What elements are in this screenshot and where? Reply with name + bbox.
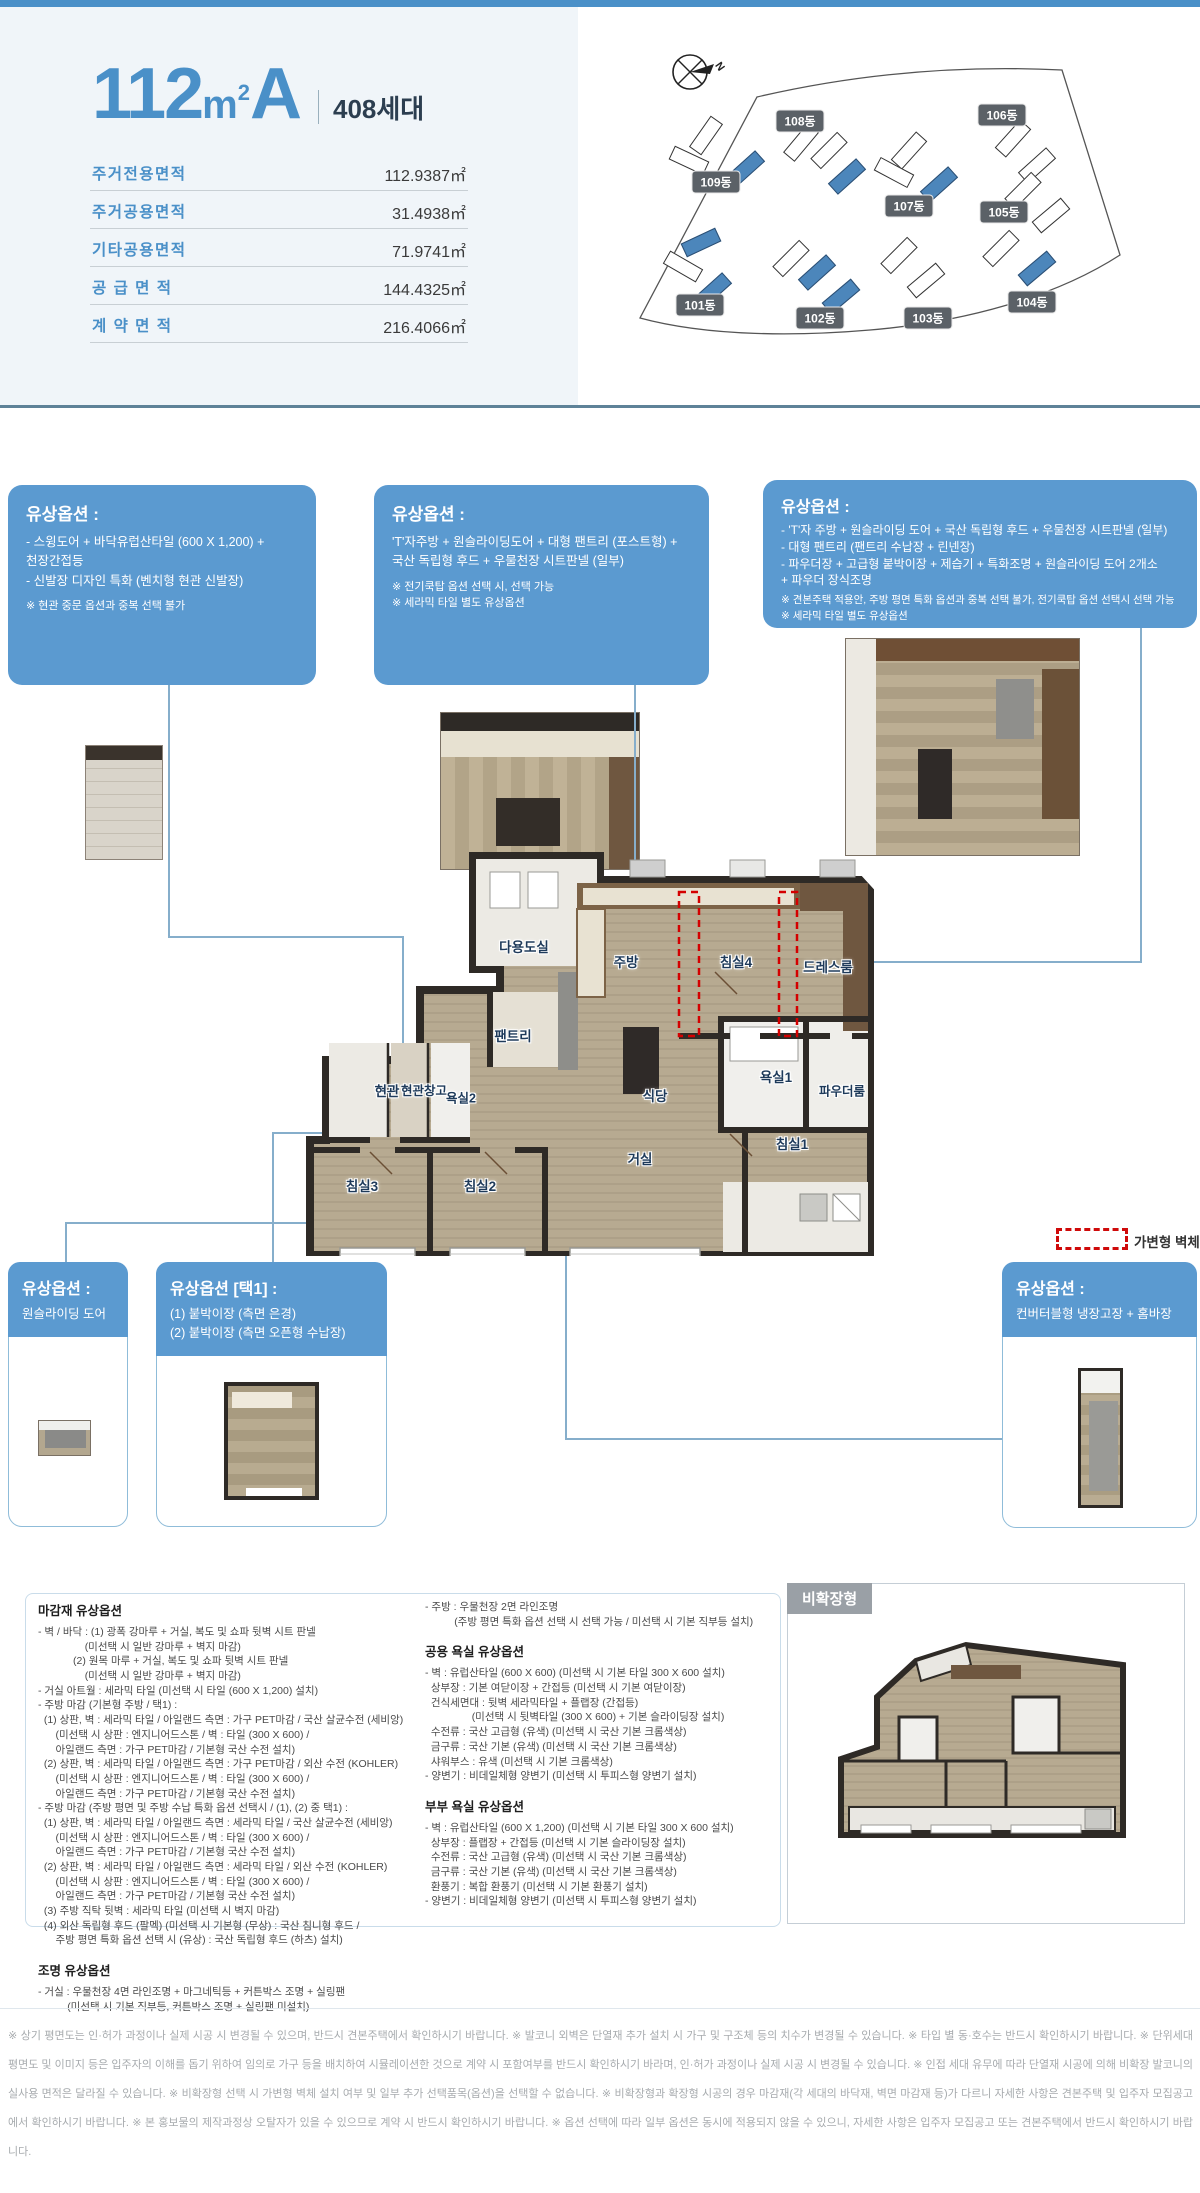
option-box-title: 유상옵션 : bbox=[392, 500, 691, 525]
common-bath-body: - 벽 : 유럽산타일 (600 X 600) (미선택 시 기본 타일 300… bbox=[425, 1666, 770, 1784]
card-body: (1) 붙박이장 (측면 은경) (2) 붙박이장 (측면 오픈형 수납장) bbox=[170, 1305, 373, 1343]
card-body: 원슬라이딩 도어 bbox=[22, 1305, 114, 1324]
table-row: 주거전용면적112.9387㎡ bbox=[90, 152, 468, 191]
room-label-bed4: 침실4 bbox=[720, 951, 752, 971]
kitchen-dress-option-preview-image bbox=[845, 638, 1080, 856]
card-title: 유상옵션 : bbox=[22, 1275, 114, 1299]
area-label: 주거공용면적 bbox=[92, 200, 187, 222]
building-label-102: 102동 bbox=[796, 308, 843, 329]
room-label-powder: 파우더룸 bbox=[819, 1081, 865, 1100]
master-bath-title: 부부 욕실 유상옵션 bbox=[425, 1796, 770, 1815]
building-label-107: 107동 bbox=[885, 196, 932, 217]
paid-option-box-kitchen-dress: 유상옵션 : - 'T'자 주방 + 원슬라이딩 도어 + 국산 독립형 후드 … bbox=[763, 480, 1197, 628]
paid-option-box-entry: 유상옵션 : - 스윙도어 + 바닥유럽산타일 (600 X 1,200) + … bbox=[8, 485, 316, 685]
area-label: 주거전용면적 bbox=[92, 162, 187, 184]
building-label-105: 105동 bbox=[980, 202, 1027, 223]
table-row: 계 약 면 적216.4066㎡ bbox=[90, 304, 468, 343]
area-value: 216.4066㎡ bbox=[383, 314, 466, 338]
common-bath-title: 공용 욕실 유상옵션 bbox=[425, 1641, 770, 1660]
title-separator bbox=[318, 90, 319, 124]
option-box-title: 유상옵션 : bbox=[781, 493, 1179, 517]
brochure-page: 112m2A408세대 주거전용면적112.9387㎡ 주거공용면적31.493… bbox=[0, 0, 1200, 2193]
building-label-101: 101동 bbox=[676, 295, 723, 316]
sliding-door-preview-image bbox=[38, 1420, 91, 1456]
paid-option-card-sliding-door: 유상옵션 : 원슬라이딩 도어 bbox=[8, 1262, 128, 1527]
area-value: 71.9741㎡ bbox=[392, 238, 466, 262]
room-label-utility: 다용도실 bbox=[499, 936, 549, 956]
option-box-body: 'T'자주방 + 원슬라이딩도어 + 대형 팬트리 (포스트형) + 국산 독립… bbox=[392, 533, 691, 572]
kitchen-option-preview-image bbox=[440, 712, 640, 870]
household-count: 408세대 bbox=[333, 94, 424, 124]
room-label-bed3: 침실3 bbox=[346, 1175, 378, 1195]
option-box-title: 유상옵션 : bbox=[26, 500, 298, 525]
table-row: 공 급 면 적144.4325㎡ bbox=[90, 266, 468, 305]
unit-size-sup: 2 bbox=[238, 80, 250, 105]
fridge-homebar-preview-image bbox=[1078, 1368, 1123, 1508]
footer-divider bbox=[0, 2008, 1200, 2009]
table-row: 주거공용면적31.4938㎡ bbox=[90, 190, 468, 229]
header-divider bbox=[0, 405, 1200, 408]
site-map: N 101동 102동 103동 104동 105동 106동 107동 108… bbox=[470, 15, 1130, 360]
room-label-kitchen: 주방 bbox=[614, 951, 639, 971]
table-row: 기타공용면적71.9741㎡ bbox=[90, 228, 468, 267]
room-label-bath2: 욕실2 bbox=[446, 1088, 476, 1107]
north-letter: N bbox=[712, 60, 726, 73]
finish-options-body: - 벽 / 바닥 : (1) 광폭 강마루 + 거실, 복도 및 쇼파 뒷벽 시… bbox=[38, 1625, 410, 1948]
nonexpanded-tab: 비확장형 bbox=[787, 1583, 872, 1614]
specs-col-left: 마감재 유상옵션 - 벽 / 바닥 : (1) 광폭 강마루 + 거실, 복도 … bbox=[38, 1600, 410, 2027]
room-label-dining: 식당 bbox=[643, 1085, 668, 1105]
room-label-living: 거실 bbox=[628, 1148, 653, 1168]
closet-preview-image bbox=[224, 1382, 319, 1500]
unit-size-unit: m bbox=[202, 83, 238, 127]
building-label-106: 106동 bbox=[978, 105, 1025, 126]
specs-col-right: - 주방 : 우물천장 2면 라인조명 (주방 평면 특화 옵션 선택 시 선택… bbox=[425, 1600, 770, 1921]
building-label-108: 108동 bbox=[776, 111, 823, 132]
top-accent-bar bbox=[0, 0, 1200, 7]
option-box-note: ※ 전기쿡탑 옵션 선택 시, 선택 가능 ※ 세라믹 타일 별도 유상옵션 bbox=[392, 579, 691, 612]
card-title: 유상옵션 : bbox=[1016, 1275, 1183, 1299]
unit-size-number: 112 bbox=[92, 54, 202, 134]
disclaimer-text: ※ 상기 평면도는 인·허가 과정이나 실제 시공 시 변경될 수 있으며, 반… bbox=[8, 2022, 1193, 2167]
connector-line bbox=[1140, 628, 1142, 963]
building-label-109: 109동 bbox=[692, 172, 739, 193]
lighting-options-body: - 거실 : 우물천장 4면 라인조명 + 마그네틱등 + 커튼박스 조명 + … bbox=[38, 1985, 410, 2014]
paid-option-box-kitchen: 유상옵션 : 'T'자주방 + 원슬라이딩도어 + 대형 팬트리 (포스트형) … bbox=[374, 485, 709, 685]
area-value: 144.4325㎡ bbox=[383, 276, 466, 300]
room-label-bath1: 욕실1 bbox=[760, 1066, 792, 1086]
building-label-103: 103동 bbox=[904, 308, 951, 329]
main-floor-plan bbox=[300, 852, 874, 1256]
movable-wall-legend-swatch bbox=[1056, 1228, 1128, 1250]
floor-plan-drawing bbox=[300, 852, 874, 1256]
option-box-body: - 'T'자 주방 + 원슬라이딩 도어 + 국산 독립형 후드 + 우물천장 … bbox=[781, 522, 1179, 589]
option-box-body: - 스윙도어 + 바닥유럽산타일 (600 X 1,200) + 천장간접등 -… bbox=[26, 533, 298, 591]
master-bath-body: - 벽 : 유럽산타일 (600 X 1,200) (미선택 시 기본 타일 3… bbox=[425, 1821, 770, 1909]
area-label: 공 급 면 적 bbox=[92, 276, 172, 298]
nonexpanded-floor-plan bbox=[821, 1639, 1151, 1889]
room-label-bed2: 침실2 bbox=[464, 1175, 496, 1195]
card-title: 유상옵션 [택1] : bbox=[170, 1275, 373, 1299]
connector-line bbox=[272, 1132, 274, 1262]
connector-line bbox=[168, 685, 170, 936]
room-label-pantry: 팬트리 bbox=[494, 1025, 531, 1045]
finish-options-title: 마감재 유상옵션 bbox=[38, 1600, 410, 1619]
option-box-note: ※ 현관 중문 옵션과 중복 선택 불가 bbox=[26, 598, 298, 615]
connector-line bbox=[634, 685, 636, 878]
nonexpanded-panel: 비확장형 bbox=[787, 1583, 1185, 1924]
movable-wall-legend-label: 가변형 벽체 bbox=[1134, 1231, 1200, 1251]
area-label: 기타공용면적 bbox=[92, 238, 187, 260]
room-label-entrance: 현관 bbox=[375, 1080, 400, 1100]
area-label: 계 약 면 적 bbox=[92, 314, 172, 336]
compass-icon: N bbox=[673, 55, 727, 89]
connector-line bbox=[565, 1438, 1002, 1440]
entry-option-preview-image bbox=[85, 745, 163, 860]
area-value: 31.4938㎡ bbox=[392, 200, 466, 224]
unit-type-letter: A bbox=[250, 54, 302, 134]
room-label-entrance-storage: 현관창고 bbox=[401, 1085, 447, 1099]
area-value: 112.9387㎡ bbox=[384, 162, 466, 186]
card-body: 컨버터블형 냉장고장 + 홈바장 bbox=[1016, 1305, 1183, 1324]
room-label-dress: 드레스룸 bbox=[803, 956, 853, 976]
connector-line bbox=[65, 1222, 67, 1262]
lighting-options-title: 조명 유상옵션 bbox=[38, 1960, 410, 1979]
building-label-104: 104동 bbox=[1008, 292, 1055, 313]
lighting-options-body-2: - 주방 : 우물천장 2면 라인조명 (주방 평면 특화 옵션 선택 시 선택… bbox=[425, 1600, 770, 1629]
option-box-note: ※ 견본주택 적용안, 주방 평면 특화 옵션과 중복 선택 불가, 전기쿡탑 … bbox=[781, 593, 1179, 625]
room-label-bed1: 침실1 bbox=[776, 1133, 808, 1153]
